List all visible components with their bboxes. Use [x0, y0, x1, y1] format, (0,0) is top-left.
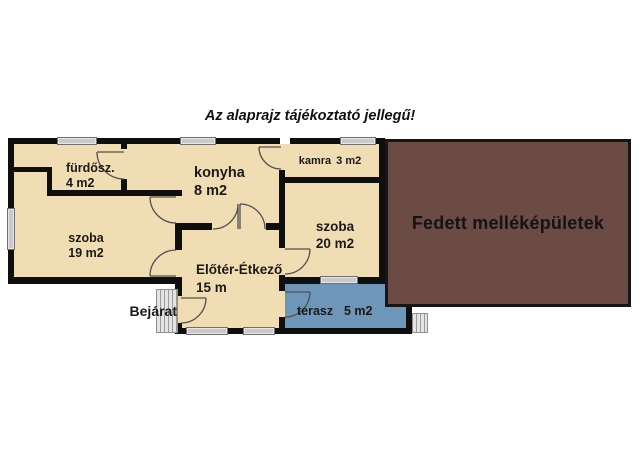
room-name: Előtér-Étkező — [196, 261, 282, 279]
room-area: 19 m2 — [57, 246, 115, 261]
room-area-terrace: 5 m2 — [344, 304, 373, 318]
room-label-foyer: Előtér-Étkező 15 m — [196, 261, 282, 297]
door-arc — [259, 147, 281, 169]
door-arc — [240, 204, 265, 229]
room-area: 20 m2 — [303, 235, 367, 252]
room-label-room20: szoba 20 m2 — [303, 218, 367, 252]
room-name: kamra — [299, 155, 331, 167]
room-label-room19: szoba 19 m2 — [57, 231, 115, 261]
door-arc — [285, 249, 310, 274]
room-label-bathroom: fürdősz. 4 m2 — [66, 161, 115, 191]
door-arc — [181, 298, 206, 323]
room-label-kitchen: konyha 8 m2 — [194, 164, 245, 200]
door-arc — [213, 204, 238, 229]
room-name: konyha — [194, 164, 245, 182]
room-name: szoba — [303, 218, 367, 235]
floor-plan: Az alaprajz tájékoztató jellegű! Fedett … — [0, 0, 640, 452]
entrance-label: Bejárat — [118, 303, 177, 319]
room-label-terrace: terasz — [297, 304, 333, 318]
room-area: 4 m2 — [66, 176, 115, 191]
room-name: fürdősz. — [66, 161, 115, 176]
room-area: 8 m2 — [194, 182, 245, 200]
room-area: 15 m — [196, 279, 282, 297]
room-area: 3 m2 — [336, 155, 361, 167]
door-arc — [150, 250, 176, 276]
door-arc — [150, 197, 176, 223]
room-label-pantry: kamra3 m2 — [288, 155, 372, 167]
room-name: szoba — [57, 231, 115, 246]
